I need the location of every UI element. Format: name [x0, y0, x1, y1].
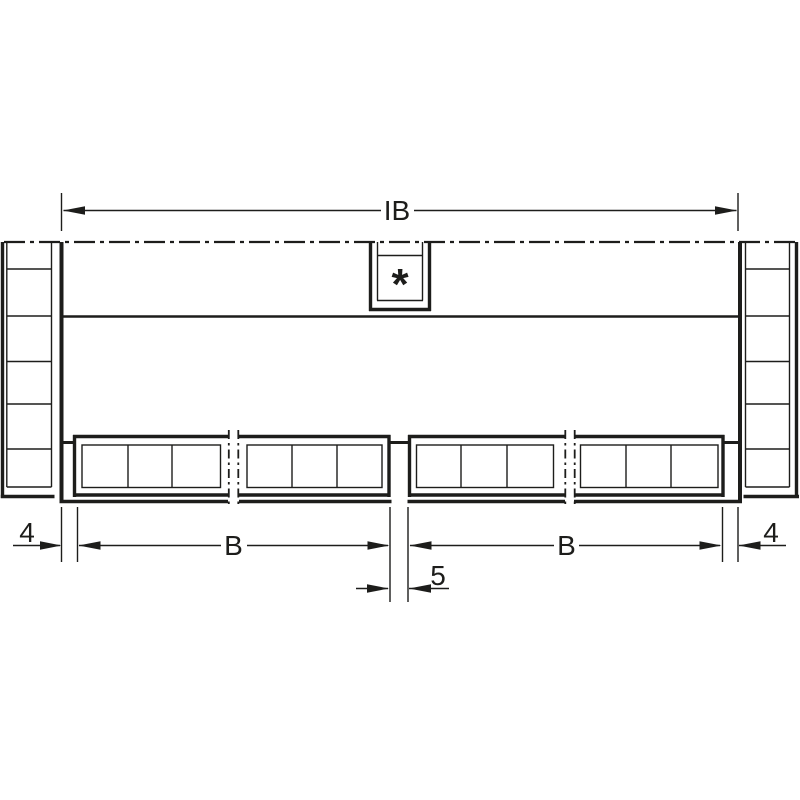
center-marker-box: * — [369, 242, 431, 311]
technical-drawing-page: * — [0, 0, 800, 800]
dimension-label-4-right: 4 — [763, 517, 779, 548]
drawer-inner-frame — [247, 445, 382, 488]
drawer-inner-frame — [82, 445, 221, 488]
dimension-right-drawer-width: B — [410, 507, 739, 562]
dimension-right-clearance: 4 — [739, 517, 787, 550]
arrowhead-left — [63, 206, 85, 214]
drawer-inner-frame — [417, 445, 554, 488]
dimension-label-ib: IB — [384, 195, 410, 226]
footnote-marker: * — [391, 260, 409, 309]
right-wall-section — [744, 242, 800, 498]
left-wall-section — [1, 242, 55, 498]
drawer-box-4 — [574, 435, 725, 497]
dimension-label-5: 5 — [430, 560, 446, 591]
arrowhead-right — [368, 541, 390, 549]
dimension-label-b-right: B — [557, 530, 576, 561]
cabinet-section-diagram: * — [0, 0, 800, 800]
drawer-inner-frame — [581, 445, 719, 488]
arrowhead-right — [367, 584, 389, 592]
drawer-box-2 — [239, 435, 391, 497]
dimension-ib: IB — [62, 193, 739, 231]
arrowhead-left — [410, 541, 432, 549]
drawer-box-1 — [73, 435, 228, 497]
dimension-label-4-left: 4 — [19, 517, 35, 548]
dimension-left-clearance: 4 — [13, 507, 78, 562]
arrowhead-left — [79, 541, 101, 549]
dimension-left-drawer-width: B — [79, 530, 390, 561]
arrowhead-right — [40, 541, 62, 549]
arrowhead-left — [739, 541, 761, 549]
dimension-label-b-left: B — [224, 530, 243, 561]
drawer-box-3 — [408, 435, 565, 497]
dimension-center-clearance: 5 — [356, 507, 449, 602]
arrowhead-right — [700, 541, 722, 549]
arrowhead-right — [715, 206, 737, 214]
arrowhead-left — [409, 584, 431, 592]
